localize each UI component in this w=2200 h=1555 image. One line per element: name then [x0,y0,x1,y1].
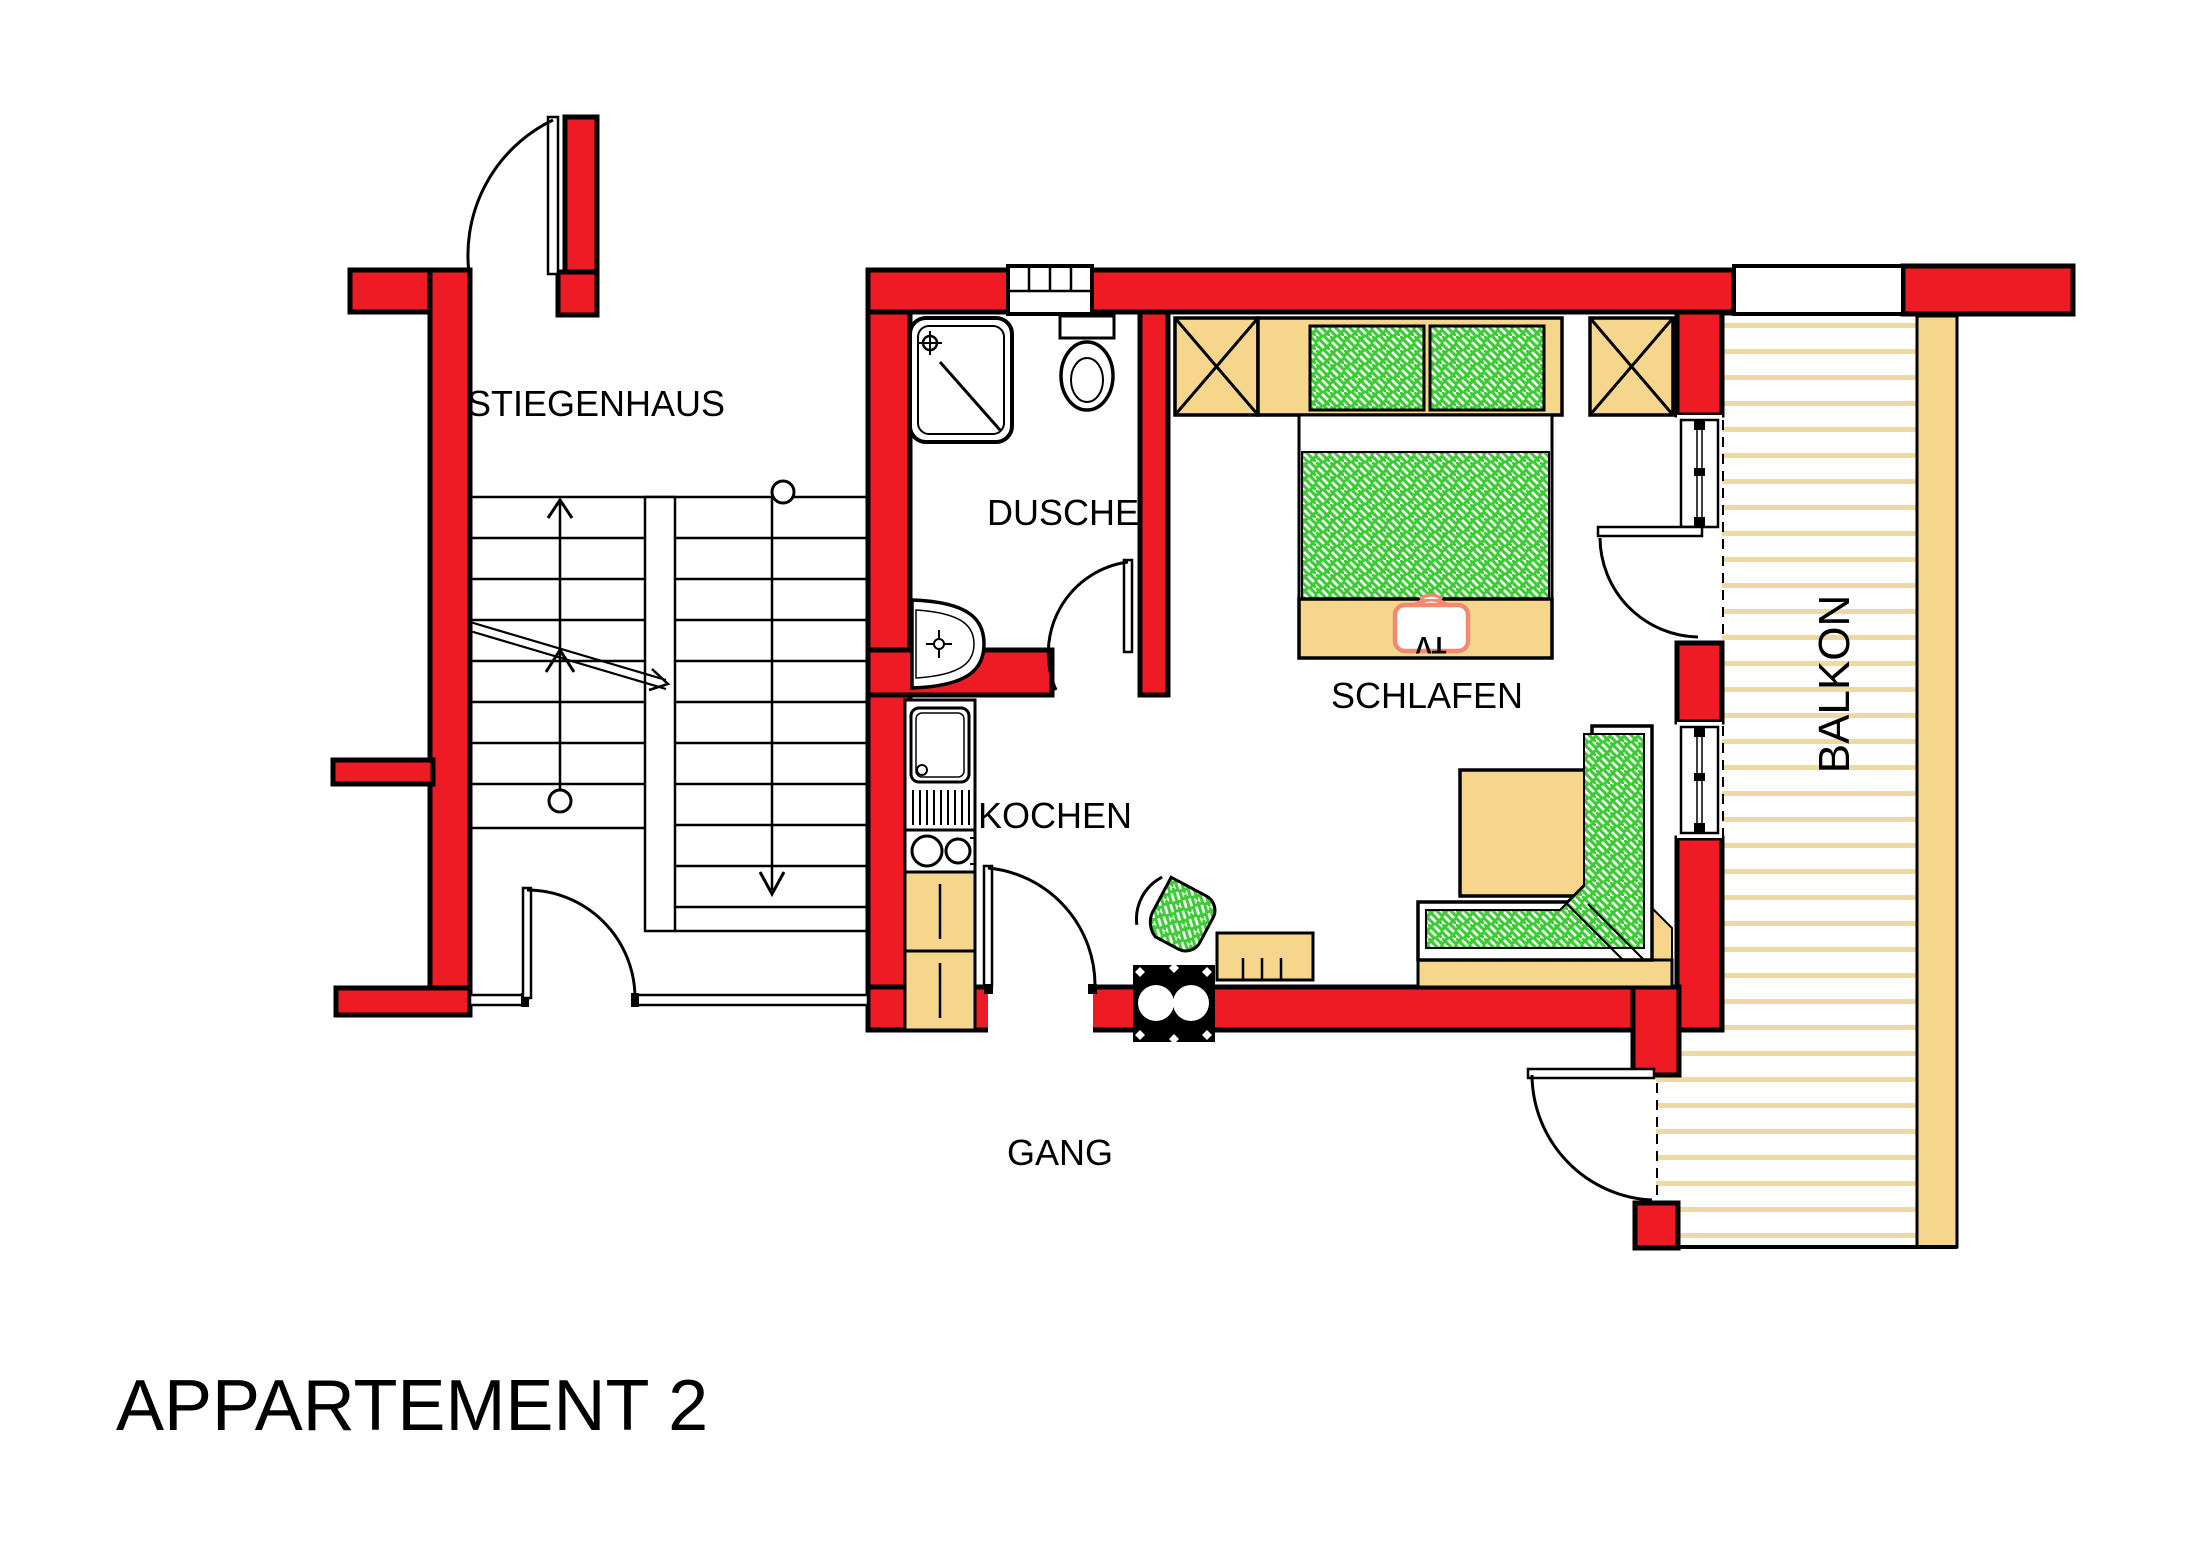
kitchen-door [984,866,1097,1033]
stairwell-door [523,888,635,998]
gang-balcony-door [1528,1069,1654,1200]
bedroom: TV SCHLAFEN [1175,318,1702,716]
bedroom-window-1 [1677,415,1722,531]
living-area [1128,726,1672,987]
stove [905,830,975,872]
double-bed: TV [1299,415,1552,658]
room-label-balkon: BALKON [1810,595,1859,774]
floor-plan: BALKON [0,0,2200,1555]
pillow-left [1310,326,1424,410]
room-label-stiegenhaus: STIEGENHAUS [467,383,725,424]
dusche-room: DUSCHE [910,316,1139,690]
room-label-schlafen: SCHLAFEN [1331,675,1523,716]
pillow-right [1430,326,1544,410]
bedroom-window-2 [1677,722,1722,838]
tv: TV [1395,595,1468,658]
dusche-door [1048,560,1132,690]
wall-entry-pier-base [558,272,597,315]
wall-left-stub [333,760,433,784]
chimney [1133,963,1215,1044]
floor-plan-page: BALKON [0,0,2200,1555]
wall-east-lower [1677,838,1722,1030]
stairs [470,481,868,931]
wall-dusche-east [1140,312,1168,695]
east-windows [1677,415,1722,838]
page-title: APPARTEMENT 2 [116,1366,708,1446]
room-label-kochen: KOCHEN [978,795,1132,836]
balcony-north-opening [1734,266,1903,314]
wall-balcony-door-pier [1635,1203,1678,1248]
sofa-table [1460,770,1587,896]
stair-handrail [470,622,666,680]
wardrobe-right [1590,318,1673,415]
dining-chair [1128,870,1220,957]
shower [910,318,1012,442]
bed-duvet [1302,452,1549,599]
balcony-edge-band [1917,316,1957,1247]
tv-label: TV [1416,631,1447,658]
wall-apartment-north [868,270,1734,312]
wall-east-pier-top [1677,312,1722,415]
wall-se-pier [1633,987,1679,1075]
stair-newel-post [549,790,571,812]
room-label-dusche: DUSCHE [987,492,1139,533]
stair-divider [645,497,675,931]
bedroom-balcony-door [1598,527,1702,637]
balcony-deck-lower [1656,1030,1917,1247]
side-bench [1217,933,1313,980]
wall-bottom-left [336,988,470,1015]
kitchen-sink [905,700,975,830]
sofa-base-strip [1418,960,1672,987]
wall-stairwell-west [430,270,470,1015]
toilet [1060,316,1114,410]
wardrobe-left [1175,318,1258,415]
wall-east-pier-mid [1677,643,1722,722]
room-label-gang: GANG [1007,1132,1113,1173]
wall-neighbor-north [1903,266,2073,314]
entry-door [468,117,558,280]
kitchen: KOCHEN [905,700,1132,1030]
stair-newel-post-top [772,481,794,503]
